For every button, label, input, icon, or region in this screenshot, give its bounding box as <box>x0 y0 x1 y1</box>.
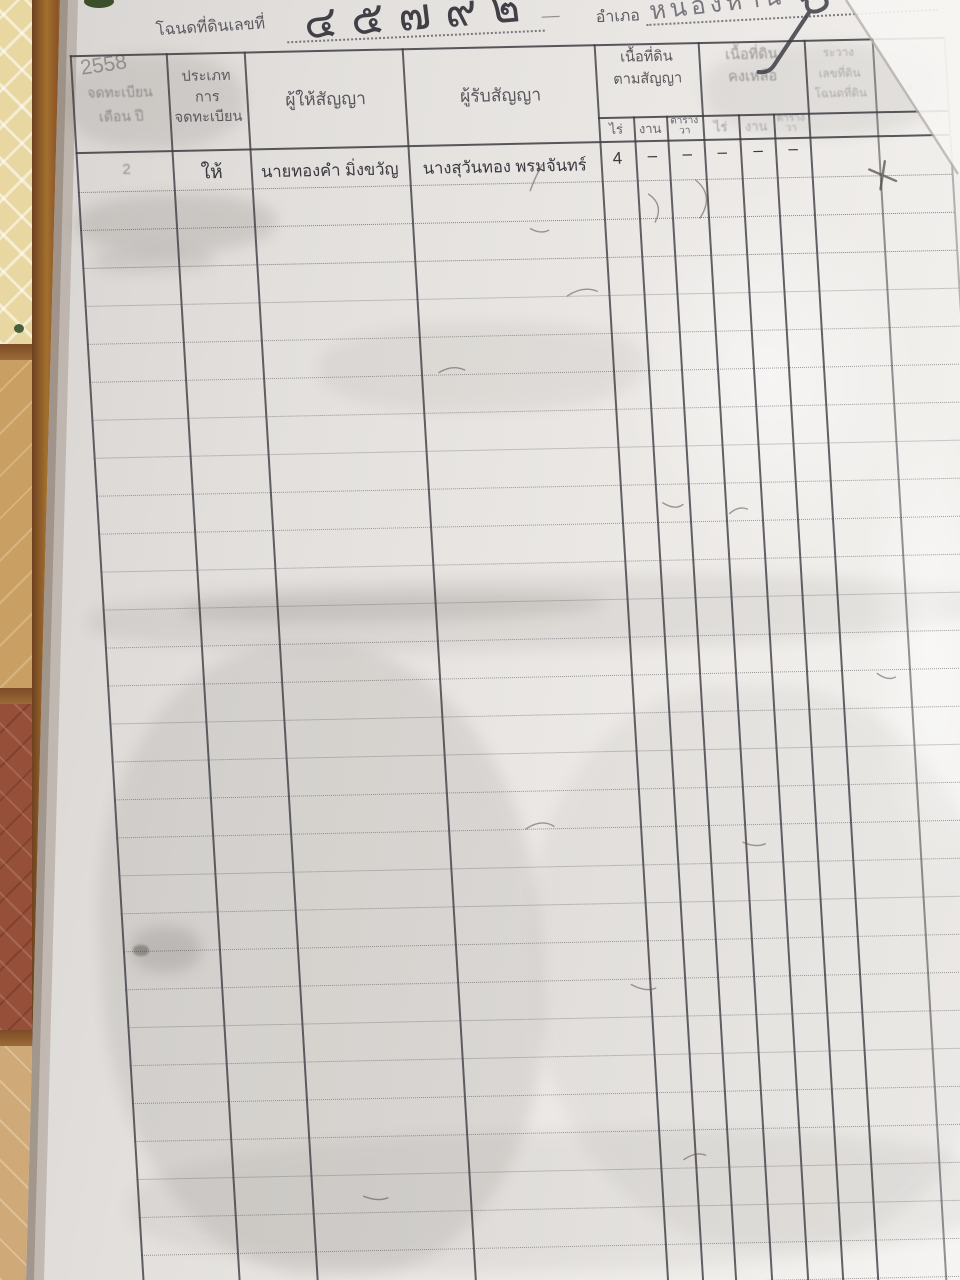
paper-sheet: โฉนดที่ดินเลขที่ ๔๕๗๙๒ — อำเภอ หนองหาน 2… <box>0 0 960 1280</box>
paper-corner-crease <box>0 0 960 260</box>
photo-scene: โฉนดที่ดินเลขที่ ๔๕๗๙๒ — อำเภอ หนองหาน 2… <box>0 0 960 1280</box>
floor-debris-dot <box>14 324 24 333</box>
